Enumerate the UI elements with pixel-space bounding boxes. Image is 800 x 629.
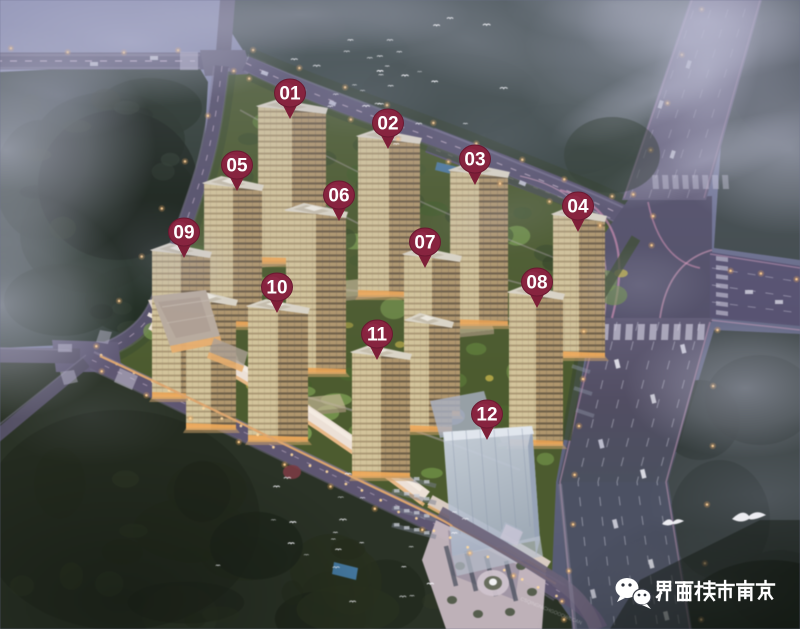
svg-text:02: 02 bbox=[377, 114, 398, 135]
svg-text:04: 04 bbox=[567, 197, 589, 218]
svg-text:06: 06 bbox=[328, 186, 349, 207]
svg-text:07: 07 bbox=[414, 233, 435, 254]
svg-text:10: 10 bbox=[266, 278, 287, 299]
svg-text:09: 09 bbox=[173, 223, 194, 244]
svg-text:12: 12 bbox=[476, 405, 497, 426]
svg-text:03: 03 bbox=[464, 150, 485, 171]
svg-text:01: 01 bbox=[279, 84, 301, 105]
svg-text:11: 11 bbox=[367, 325, 388, 346]
svg-text:08: 08 bbox=[526, 273, 547, 294]
svg-text:05: 05 bbox=[226, 156, 248, 177]
